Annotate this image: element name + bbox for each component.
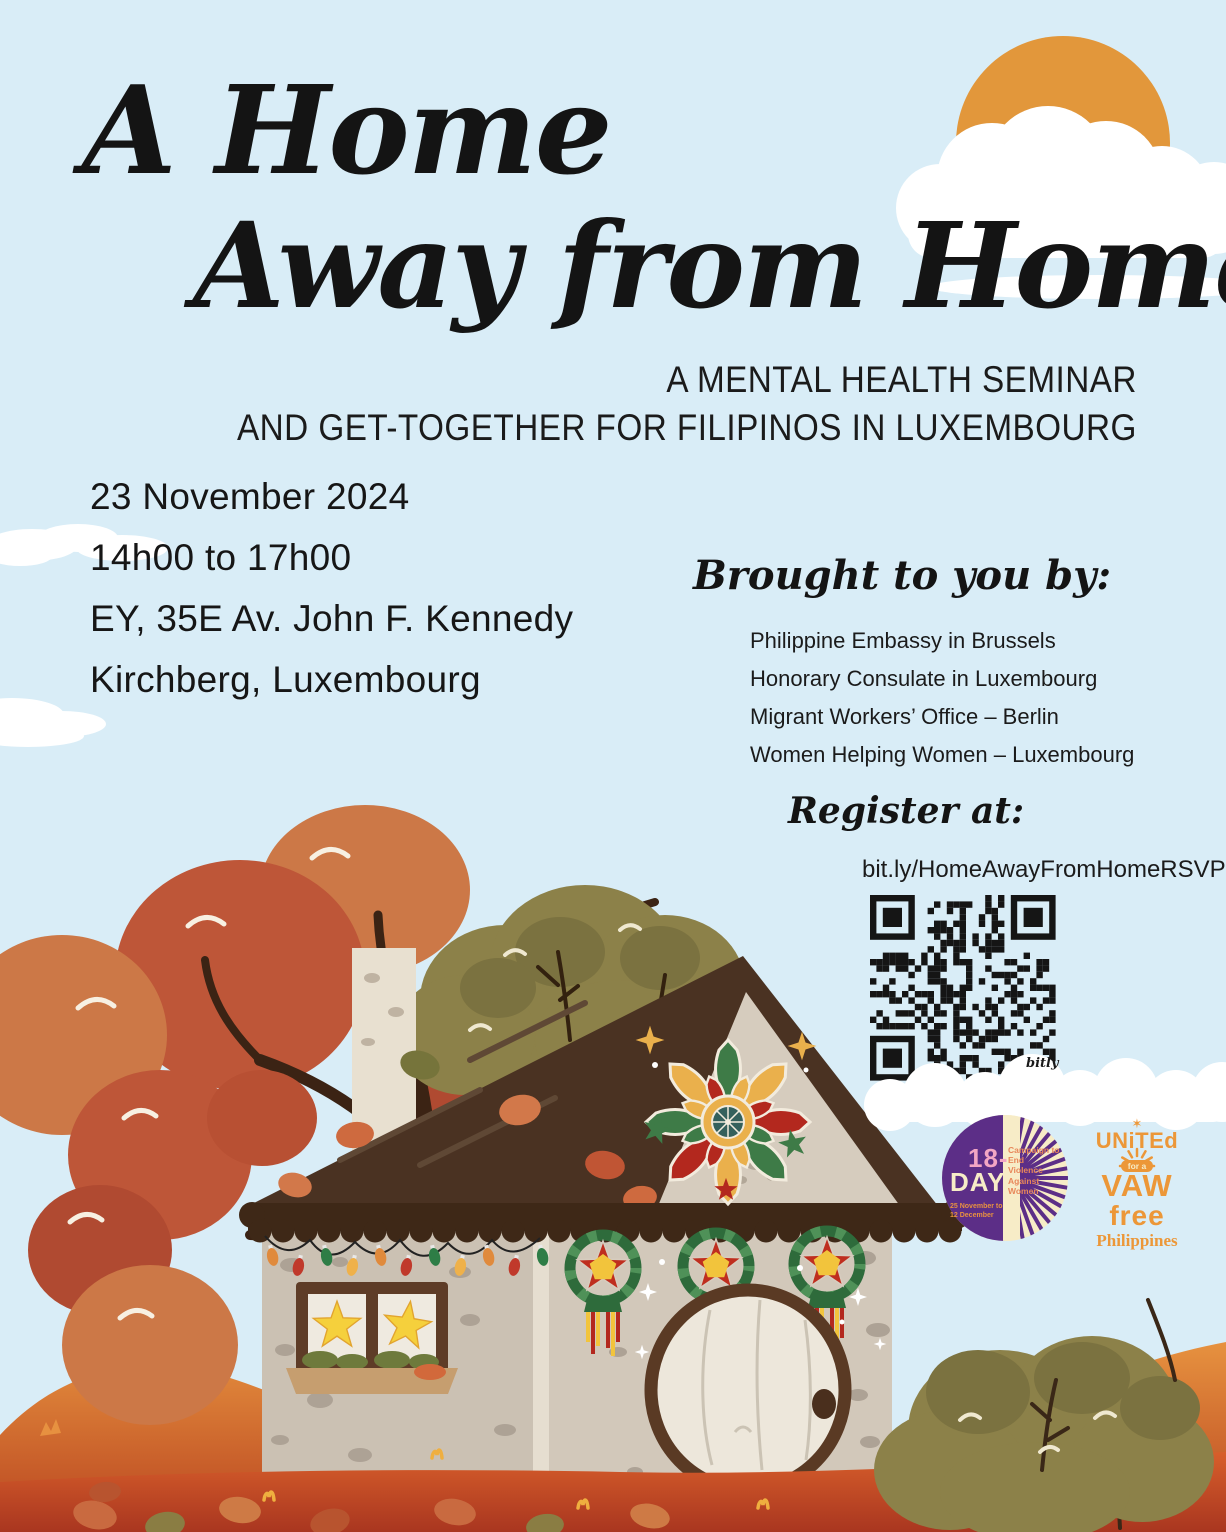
event-details: 23 November 2024 14h00 to 17h00 EY, 35E …	[90, 466, 573, 710]
poster-subtitle: A MENTAL HEALTH SEMINAR AND GET-TOGETHER…	[237, 356, 1137, 452]
event-venue: EY, 35E Av. John F. Kennedy	[90, 588, 573, 649]
qr-code	[870, 895, 1056, 1081]
vaw-free-philippines-logo: ✶ UNiTEd for a VAW free Philippines	[1078, 1120, 1196, 1252]
poster-title-line2: Away from Home	[193, 196, 1226, 335]
event-time: 14h00 to 17h00	[90, 527, 573, 588]
18-day-campaign-logo-text: 18- DAY 25 November to 12 December Campa…	[942, 1115, 1068, 1241]
vaw-line3: VAW	[1078, 1168, 1196, 1204]
window	[286, 1282, 458, 1394]
qr-provider-label: bitly	[1026, 1056, 1059, 1071]
brought-by-heading: Brought to you by:	[693, 552, 1111, 599]
vaw-line4: free	[1078, 1200, 1196, 1232]
round-door	[651, 1290, 845, 1490]
organizer-item: Migrant Workers’ Office – Berlin	[750, 698, 1134, 736]
organizer-list: Philippine Embassy in Brussels Honorary …	[750, 622, 1134, 774]
logo18-dates: 25 November to 12 December	[950, 1203, 1008, 1221]
logo18-campaign: Campaign to End Violence Against Women	[1008, 1145, 1060, 1196]
subtitle-line2: AND GET-TOGETHER FOR FILIPINOS IN LUXEMB…	[237, 404, 1137, 452]
event-date: 23 November 2024	[90, 466, 573, 527]
poster-title-line1: A Home	[82, 58, 610, 202]
register-heading: Register at:	[788, 790, 1024, 832]
event-poster: A Home Away from Home A MENTAL HEALTH SE…	[0, 0, 1226, 1532]
event-city: Kirchberg, Luxembourg	[90, 649, 573, 710]
organizer-item: Philippine Embassy in Brussels	[750, 622, 1134, 660]
subtitle-line1: A MENTAL HEALTH SEMINAR	[237, 356, 1137, 404]
organizer-item: Women Helping Women – Luxembourg	[750, 736, 1134, 774]
registration-link[interactable]: bit.ly/HomeAwayFromHomeRSVP	[862, 856, 1226, 884]
bush-foreground	[874, 1300, 1214, 1532]
door-knob	[812, 1389, 836, 1419]
wall-corner	[533, 1232, 549, 1498]
logo18-line2: DAY	[950, 1167, 1006, 1198]
house	[239, 948, 971, 1506]
vaw-line1: UNiTEd	[1078, 1128, 1196, 1154]
vaw-line5: Philippines	[1078, 1231, 1196, 1251]
organizer-item: Honorary Consulate in Luxembourg	[750, 660, 1134, 698]
